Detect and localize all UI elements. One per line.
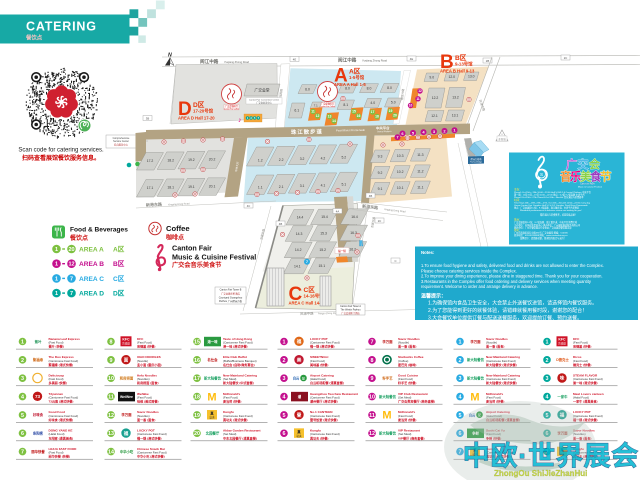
svg-text:5: 5 xyxy=(21,413,24,419)
svg-text:味: 味 xyxy=(560,375,565,382)
svg-text:3.2: 3.2 xyxy=(300,157,305,161)
svg-text:VIP餐厅 (商务套餐): VIP餐厅 (商务套餐) xyxy=(398,435,424,440)
svg-text:19: 19 xyxy=(194,413,200,419)
svg-text:交: 交 xyxy=(578,157,589,171)
svg-text:The Westin Pazhou: The Westin Pazhou xyxy=(340,308,361,311)
svg-text:名仕会 (自助/商务宴会): 名仕会 (自助/商务宴会) xyxy=(223,362,255,367)
svg-text:1: 1 xyxy=(55,276,58,282)
svg-text:赤岗塔: 赤岗塔 xyxy=(498,137,506,141)
svg-text:德克士 (快餐): 德克士 (快餐) xyxy=(572,362,591,367)
svg-text:17: 17 xyxy=(194,376,200,382)
svg-text:1: 1 xyxy=(55,291,58,297)
svg-text:7: 7 xyxy=(70,276,73,282)
svg-text:10.1: 10.1 xyxy=(397,186,404,190)
svg-text:名仕会: 名仕会 xyxy=(207,357,218,362)
svg-text:15.1: 15.1 xyxy=(318,264,325,268)
svg-text:丽华快餐 (快餐): 丽华快餐 (快餐) xyxy=(49,454,70,459)
svg-text:潮州餐厅 (港式快餐): 潮州餐厅 (港式快餐) xyxy=(310,399,338,404)
svg-text:阅江中路: 阅江中路 xyxy=(338,57,357,64)
svg-text:福一锅 (港式快餐): 福一锅 (港式快餐) xyxy=(136,435,162,440)
svg-text:Venue:Canton Fair Complex Hall: Venue:Canton Fair Complex Hall 5.2 & 9.2… xyxy=(514,204,588,207)
svg-text:新大陆餐饮 (中式套餐): 新大陆餐饮 (中式套餐) xyxy=(223,380,254,385)
svg-text:Canton Fair Convention Center: Canton Fair Convention Center xyxy=(249,99,280,102)
svg-text:8: 8 xyxy=(110,339,113,345)
svg-text:8: 8 xyxy=(371,358,374,364)
svg-text:蕉叶: 蕉叶 xyxy=(34,339,42,344)
svg-text:6: 6 xyxy=(21,431,24,437)
svg-text:3.大会餐饮单位提供订餐与配送送餐服务，欢迎提前订餐、预约送: 3.大会餐饮单位提供订餐与配送送餐服务，欢迎提前订餐、预约送餐。 xyxy=(428,315,582,322)
svg-text:新港东路: 新港东路 xyxy=(146,201,162,208)
svg-text:丽华快餐: 丽华快餐 xyxy=(31,449,45,454)
svg-text:4: 4 xyxy=(21,394,24,400)
svg-text:20.1: 20.1 xyxy=(209,184,216,188)
svg-text:10.2: 10.2 xyxy=(397,170,404,174)
svg-text:6.1: 6.1 xyxy=(294,109,299,113)
svg-text:M: M xyxy=(470,391,479,403)
svg-text:配: 配 xyxy=(302,375,305,380)
svg-text:籽手艺: 籽手艺 xyxy=(382,376,393,381)
svg-text:真功夫 (快餐): 真功夫 (快餐) xyxy=(310,435,328,440)
svg-text:时间：: 时间： xyxy=(514,198,522,202)
svg-text:14: 14 xyxy=(332,119,336,123)
svg-text:肯德基 (快餐): 肯德基 (快餐) xyxy=(573,344,591,349)
svg-text:新大陆餐饮: 新大陆餐饮 xyxy=(467,357,485,362)
svg-text:AREA A: AREA A xyxy=(79,246,104,253)
svg-text:福一锅: 福一锅 xyxy=(338,249,346,253)
svg-text:李万面: 李万面 xyxy=(381,339,393,344)
svg-text:13.0: 13.0 xyxy=(468,74,475,78)
svg-text:中华小吃 (港式快餐): 中华小吃 (港式快餐) xyxy=(137,454,165,459)
svg-text:20: 20 xyxy=(194,431,200,437)
svg-text:1: 1 xyxy=(55,247,58,253)
svg-text:温馨提示：: 温馨提示： xyxy=(421,293,446,300)
svg-text:12: 12 xyxy=(369,431,375,437)
svg-text:4.0: 4.0 xyxy=(370,101,375,105)
svg-text:综合服务中心: 综合服务中心 xyxy=(114,143,129,147)
svg-text:15: 15 xyxy=(194,339,200,345)
svg-text:李万面: 李万面 xyxy=(120,412,132,417)
svg-text:17-20号馆: 17-20号馆 xyxy=(193,108,214,115)
svg-text:S: S xyxy=(540,172,543,177)
svg-text:肯德基: 肯德基 xyxy=(558,342,566,346)
svg-text:2: 2 xyxy=(21,358,24,364)
svg-text:好味食 (港式快餐): 好味食 (港式快餐) xyxy=(48,417,74,422)
svg-text:KFC: KFC xyxy=(122,338,130,342)
svg-text:16.4: 16.4 xyxy=(351,215,358,219)
svg-text:12: 12 xyxy=(316,114,320,118)
svg-text:Wonderful performances & delic: Wonderful performances & delicious cuisi… xyxy=(520,209,582,212)
svg-text:KFC: KFC xyxy=(558,338,566,342)
svg-text:白云机场配餐 (清真套餐): 白云机场配餐 (清真套餐) xyxy=(310,380,344,385)
svg-text:AREA D Hall 17-20: AREA D Hall 17-20 xyxy=(178,116,215,121)
svg-text:1: 1 xyxy=(546,339,549,345)
svg-text:3: 3 xyxy=(546,376,549,382)
svg-text:N: N xyxy=(168,53,172,59)
svg-text:17: 17 xyxy=(371,110,375,114)
svg-text:15.2: 15.2 xyxy=(319,248,326,252)
svg-text:9.2: 9.2 xyxy=(378,171,383,175)
svg-text:和府捞面 (面食): 和府捞面 (面食) xyxy=(137,380,158,385)
svg-text:11.2: 11.2 xyxy=(417,169,423,173)
svg-text:7: 7 xyxy=(21,450,24,456)
svg-text:18: 18 xyxy=(375,115,379,119)
svg-text:和府捞面: 和府捞面 xyxy=(119,376,134,381)
svg-text:Food & Beverages: Food & Beverages xyxy=(70,227,128,234)
svg-text:新大陆餐饮: 新大陆餐饮 xyxy=(467,376,485,381)
svg-text:C区: C区 xyxy=(113,275,125,283)
svg-text:5: 5 xyxy=(459,413,462,419)
svg-text:主办：: 主办： xyxy=(514,187,522,191)
svg-text:咖啡点: 咖啡点 xyxy=(166,234,184,242)
svg-text:东阳客 (清真美食): 东阳客 (清真美食) xyxy=(49,435,74,440)
svg-text:广: 广 xyxy=(566,157,577,171)
svg-text:地点：: 地点： xyxy=(514,218,522,222)
svg-text:孟小面 (重庆小面): 孟小面 (重庆小面) xyxy=(137,362,162,367)
svg-text:10.3: 10.3 xyxy=(397,154,404,158)
svg-text:扫码查看展馆餐饮服务信息。: 扫码查看展馆餐饮服务信息。 xyxy=(22,154,100,162)
svg-text:麦当劳 (快餐): 麦当劳 (快餐) xyxy=(398,417,416,422)
svg-text:蕉叶 (快餐): 蕉叶 (快餐) xyxy=(48,344,64,349)
svg-text:Canton Fair Tower A: Canton Fair Tower A xyxy=(340,305,361,308)
svg-text:4: 4 xyxy=(546,394,549,400)
svg-text:9-13号馆: 9-13号馆 xyxy=(455,61,473,68)
svg-text:19.2: 19.2 xyxy=(188,158,195,162)
svg-text:4E: 4E xyxy=(410,57,414,61)
svg-text:广交会堂: 广交会堂 xyxy=(254,87,269,92)
svg-text:广交会贵宾餐厅 (商务套餐): 广交会贵宾餐厅 (商务套餐) xyxy=(398,399,435,404)
svg-text:新大陆餐饮 (港式快餐): 新大陆餐饮 (港式快餐) xyxy=(486,362,517,367)
svg-text:10: 10 xyxy=(409,104,413,108)
svg-text:10: 10 xyxy=(108,376,114,382)
svg-text:D区: D区 xyxy=(113,290,125,298)
svg-text:11: 11 xyxy=(369,413,375,419)
svg-text:AREA D: AREA D xyxy=(79,291,104,298)
svg-text:M: M xyxy=(207,391,216,403)
svg-text:13: 13 xyxy=(328,115,332,119)
svg-text:12.2: 12.2 xyxy=(432,96,439,100)
svg-text:Canton Fair Coffee: Canton Fair Coffee xyxy=(224,107,239,110)
svg-text:14.1: 14.1 xyxy=(294,264,301,268)
svg-text:2C: 2C xyxy=(378,219,382,223)
svg-text:9: 9 xyxy=(110,358,113,364)
svg-text:17.2: 17.2 xyxy=(147,159,154,163)
svg-text:麦当劳 (快餐): 麦当劳 (快餐) xyxy=(223,399,241,404)
svg-text:4C: 4C xyxy=(247,204,251,208)
svg-text:1: 1 xyxy=(459,339,462,345)
svg-text:2C: 2C xyxy=(564,56,568,60)
svg-text:Yuejiang Zhong Road: Yuejiang Zhong Road xyxy=(362,59,388,63)
svg-text:4.2: 4.2 xyxy=(321,156,326,160)
svg-text:17.1: 17.1 xyxy=(147,186,154,190)
svg-text:7: 7 xyxy=(371,339,374,345)
svg-text:4B: 4B xyxy=(369,194,373,198)
svg-text:5.0: 5.0 xyxy=(391,101,396,105)
svg-text:味维 (美式简餐): 味维 (美式简餐) xyxy=(137,399,158,404)
svg-text:9.1: 9.1 xyxy=(378,187,383,191)
svg-text:Please choose catering service: Please choose catering services inside t… xyxy=(421,268,517,273)
svg-text:4E: 4E xyxy=(293,57,297,61)
svg-text:凤浦中路: 凤浦中路 xyxy=(300,311,314,316)
svg-text:壹号饭堂 (港式快餐): 壹号饭堂 (港式快餐) xyxy=(310,417,338,422)
svg-text:1.1: 1.1 xyxy=(258,186,263,190)
svg-text:ZhongOu ShiJieZhanHui: ZhongOu ShiJieZhanHui xyxy=(494,469,587,478)
svg-text:13: 13 xyxy=(108,431,114,437)
svg-text:肯德基: 肯德基 xyxy=(122,342,130,346)
svg-text:籽手艺 (快餐): 籽手艺 (快餐) xyxy=(398,380,416,385)
svg-text:美味基 (快餐): 美味基 (快餐) xyxy=(309,362,328,367)
svg-text:73: 73 xyxy=(35,394,41,399)
svg-text:1: 1 xyxy=(21,339,24,345)
svg-text:Canton Fair: Canton Fair xyxy=(172,244,212,253)
svg-text:14.3: 14.3 xyxy=(296,232,303,236)
svg-text:4B: 4B xyxy=(279,222,283,226)
svg-text:Music & Cuisine Festival: Music & Cuisine Festival xyxy=(578,185,602,188)
svg-text:3: 3 xyxy=(459,376,462,382)
svg-text:广交会雅乐轩酒店: 广交会雅乐轩酒店 xyxy=(221,291,241,295)
svg-text:20: 20 xyxy=(68,247,74,253)
svg-text:1.To ensure food hygiene and s: 1.To ensure food hygiene and safety, del… xyxy=(421,263,604,268)
svg-text:12: 12 xyxy=(418,89,422,93)
svg-text:18: 18 xyxy=(194,394,200,400)
svg-text:M: M xyxy=(382,410,391,422)
svg-text:凤浦中路: 凤浦中路 xyxy=(478,99,487,112)
svg-text:8.0: 8.0 xyxy=(345,87,350,91)
svg-text:Pearl River Promenade: Pearl River Promenade xyxy=(336,128,366,133)
svg-text:B区: B区 xyxy=(113,260,125,268)
svg-text:8.0: 8.0 xyxy=(367,86,372,90)
svg-text:福: 福 xyxy=(296,338,302,345)
svg-text:15.4: 15.4 xyxy=(321,215,328,219)
svg-text:餐饮点: 餐饮点 xyxy=(69,234,88,242)
svg-text:1: 1 xyxy=(283,339,286,345)
svg-text:功夫: 功夫 xyxy=(209,416,215,420)
svg-text:Pazhou Bridge: Pazhou Bridge xyxy=(470,162,482,164)
svg-text:19.1: 19.1 xyxy=(188,185,195,189)
svg-text:美: 美 xyxy=(297,356,302,363)
svg-text:好味食: 好味食 xyxy=(32,412,44,417)
svg-text:73云南 (港式快餐): 73云南 (港式快餐) xyxy=(49,399,74,404)
svg-text:12: 12 xyxy=(108,413,114,419)
svg-text:第一味 (港式快餐): 第一味 (港式快餐) xyxy=(573,380,598,385)
svg-text:requirement. Welcome to order: requirement. Welcome to order and arrang… xyxy=(421,284,538,289)
svg-text:聚福缘 (港式快餐): 聚福缘 (港式快餐) xyxy=(48,362,74,367)
svg-text:新大陆餐饮 (港式快餐): 新大陆餐饮 (港式快餐) xyxy=(486,380,517,385)
svg-text:功夫: 功夫 xyxy=(296,434,302,438)
svg-text:2.2: 2.2 xyxy=(279,158,284,162)
svg-text:中欧·世界展会: 中欧·世界展会 xyxy=(463,441,639,471)
svg-text:福一锅 (港式快餐): 福一锅 (港式快餐) xyxy=(309,344,335,349)
svg-text:节: 节 xyxy=(600,170,612,184)
svg-text:北园餐厅: 北园餐厅 xyxy=(206,431,220,436)
svg-text:Scan code for catering service: Scan code for catering services. xyxy=(18,148,104,154)
svg-text:D德克士: D德克士 xyxy=(556,357,569,362)
svg-text:肯德基 (快餐): 肯德基 (快餐) xyxy=(137,344,155,349)
svg-text:一家牛 (清真美食): 一家牛 (清真美食) xyxy=(573,399,598,404)
svg-text:Notes:: Notes: xyxy=(421,250,435,255)
svg-text:餐饮点: 餐饮点 xyxy=(26,34,43,42)
svg-text:福: 福 xyxy=(123,430,129,437)
svg-text:5.1: 5.1 xyxy=(341,183,346,187)
svg-text:1.2: 1.2 xyxy=(258,159,263,163)
svg-text:新大陆餐饮: 新大陆餐饮 xyxy=(204,376,222,381)
svg-text:多美丽 (快餐): 多美丽 (快餐) xyxy=(49,380,67,385)
svg-text:11: 11 xyxy=(108,394,114,400)
svg-text:20.2: 20.2 xyxy=(209,157,216,161)
svg-text:12.1: 12.1 xyxy=(431,114,438,118)
svg-text:面一香 (面食): 面一香 (面食) xyxy=(486,344,504,349)
svg-text:新大陆餐饮: 新大陆餐饮 xyxy=(379,431,397,436)
svg-text:♪: ♪ xyxy=(238,117,242,124)
svg-text:15.3: 15.3 xyxy=(320,231,327,235)
svg-text:真功夫 (港式快餐): 真功夫 (港式快餐) xyxy=(223,417,248,422)
svg-text:13.2: 13.2 xyxy=(452,96,459,100)
svg-text:3: 3 xyxy=(21,376,24,382)
svg-text:18.2: 18.2 xyxy=(167,158,174,162)
svg-text:会展东路: 会展东路 xyxy=(259,228,266,240)
svg-text:中东北园餐厅 (清真套餐): 中东北园餐厅 (清真套餐) xyxy=(223,435,257,440)
svg-text:AREA C: AREA C xyxy=(79,276,104,283)
svg-text:11.1: 11.1 xyxy=(417,185,423,189)
svg-text:4: 4 xyxy=(459,394,462,400)
svg-text:Coffee: Coffee xyxy=(166,224,190,233)
svg-text:Central Platform: Central Platform xyxy=(377,130,392,133)
svg-text:聚福缘: 聚福缘 xyxy=(32,357,44,362)
svg-text:WeiWee: WeiWee xyxy=(120,395,133,399)
svg-text:1: 1 xyxy=(55,262,58,268)
svg-text:7.1: 7.1 xyxy=(314,104,318,108)
svg-text:11: 11 xyxy=(416,97,420,101)
svg-text:东阳客: 东阳客 xyxy=(33,431,44,436)
svg-text:面一香 (面食): 面一香 (面食) xyxy=(137,417,155,422)
svg-text:2: 2 xyxy=(459,358,462,364)
svg-text:白云: 白云 xyxy=(293,376,300,381)
svg-text:2.1: 2.1 xyxy=(279,185,284,189)
svg-text:星巴克 (咖啡): 星巴克 (咖啡) xyxy=(398,362,416,367)
svg-text:CANTON FAIR: CANTON FAIR xyxy=(580,183,595,186)
svg-text:广交会音乐美食节: 广交会音乐美食节 xyxy=(172,261,222,269)
svg-text:14.4: 14.4 xyxy=(297,215,304,219)
svg-text:6.0: 6.0 xyxy=(305,87,310,91)
svg-text:3B: 3B xyxy=(146,116,150,120)
svg-text:8.1: 8.1 xyxy=(343,103,348,107)
svg-text:12: 12 xyxy=(68,262,74,268)
svg-text:新大陆餐饮: 新大陆餐饮 xyxy=(379,394,397,399)
svg-text:2: 2 xyxy=(546,358,549,364)
svg-text:壹: 壹 xyxy=(297,411,302,418)
svg-text:Pazhou 广州琶洲万怡: Pazhou 广州琶洲万怡 xyxy=(219,299,243,303)
svg-text:7: 7 xyxy=(70,291,73,297)
svg-text:1.为确保馆内食品卫生安全，大会禁止外送餐饮进馆，请选择馆内: 1.为确保馆内食品卫生安全，大会禁止外送餐饮进馆，请选择馆内餐饮服务。 xyxy=(428,300,597,307)
svg-text:2.为了您能得到更好的就餐体验，请错峰就餐用餐时段，谢谢您的: 2.为了您能得到更好的就餐体验，请错峰就餐用餐时段，谢谢您的配合！ xyxy=(428,307,587,314)
svg-text:面: 面 xyxy=(124,356,129,363)
svg-text:12.0: 12.0 xyxy=(448,75,455,79)
svg-text:8.0: 8.0 xyxy=(387,86,392,90)
svg-text:Xingang Dong Road: Xingang Dong Road xyxy=(168,202,190,206)
svg-text:4: 4 xyxy=(283,394,286,400)
svg-text:港一味 (港式快餐): 港一味 (港式快餐) xyxy=(223,344,248,349)
svg-text:19: 19 xyxy=(389,109,393,113)
svg-text:Time:Sept.15th—19th, 23th—27th: Time:Sept.15th—19th, 23th—27th, Oct.31th… xyxy=(514,201,591,204)
svg-text:港一味: 港一味 xyxy=(207,339,218,344)
svg-text:9.0: 9.0 xyxy=(429,75,434,79)
svg-text:一家牛: 一家牛 xyxy=(557,394,568,399)
svg-text:1-5号馆: 1-5号馆 xyxy=(349,74,365,81)
svg-text:14: 14 xyxy=(108,450,114,456)
svg-text:Yuejiang Zhong Road: Yuejiang Zhong Road xyxy=(224,60,250,64)
svg-text:Fengpu Zhong Road: Fengpu Zhong Road xyxy=(318,313,339,316)
svg-text:3.Restaurants in the Complex o: 3.Restaurants in the Complex offer food … xyxy=(421,279,592,284)
svg-text:18.1: 18.1 xyxy=(167,185,174,189)
svg-text:4.1: 4.1 xyxy=(321,183,326,187)
svg-text:2B: 2B xyxy=(486,59,490,63)
svg-text:3.1: 3.1 xyxy=(300,184,305,188)
svg-text:CATERING: CATERING xyxy=(26,20,97,34)
svg-text:中央平台: 中央平台 xyxy=(376,125,390,130)
svg-text:14.2: 14.2 xyxy=(295,248,302,252)
svg-text:2.To improve your dining exper: 2.To improve your dining experience, ple… xyxy=(421,274,603,279)
svg-text:9: 9 xyxy=(371,376,374,382)
svg-text:面一香 (面食): 面一香 (面食) xyxy=(398,344,416,349)
svg-text:李万面: 李万面 xyxy=(469,339,481,344)
svg-text:10: 10 xyxy=(369,394,375,400)
svg-text:16: 16 xyxy=(357,114,361,118)
svg-text:C: C xyxy=(394,259,396,263)
svg-text:15: 15 xyxy=(352,110,356,114)
svg-text:6: 6 xyxy=(283,431,286,437)
svg-text:Canton Fair Tower B: Canton Fair Tower B xyxy=(220,289,242,292)
svg-text:Courtyard Guangzhou: Courtyard Guangzhou xyxy=(219,296,243,299)
svg-text:16: 16 xyxy=(194,358,200,364)
svg-text:5.2: 5.2 xyxy=(341,156,346,160)
svg-text:Music & Cuisine Festival: Music & Cuisine Festival xyxy=(172,252,256,261)
svg-text:9.3: 9.3 xyxy=(378,154,383,158)
svg-text:AREA B: AREA B xyxy=(79,261,104,268)
svg-text:地址：: 地址： xyxy=(514,228,522,232)
svg-text:4A: 4A xyxy=(336,209,340,213)
svg-text:会: 会 xyxy=(589,157,601,171)
svg-text:中华小吃: 中华小吃 xyxy=(120,449,134,454)
svg-text:5: 5 xyxy=(283,413,286,419)
svg-text:Xingang Dong Road: Xingang Dong Road xyxy=(384,208,406,213)
svg-text:11.3: 11.3 xyxy=(417,153,423,157)
svg-text:A区: A区 xyxy=(113,245,125,253)
svg-text:2: 2 xyxy=(283,358,286,364)
svg-text:11: 11 xyxy=(311,110,315,114)
svg-text:AREA B Hall 9-13: AREA B Hall 9-13 xyxy=(440,69,475,74)
svg-text:20: 20 xyxy=(393,114,397,118)
svg-text:AREA A Hall 1-5: AREA A Hall 1-5 xyxy=(334,82,366,87)
svg-text:13.1: 13.1 xyxy=(452,114,459,118)
svg-text:3: 3 xyxy=(283,376,286,382)
